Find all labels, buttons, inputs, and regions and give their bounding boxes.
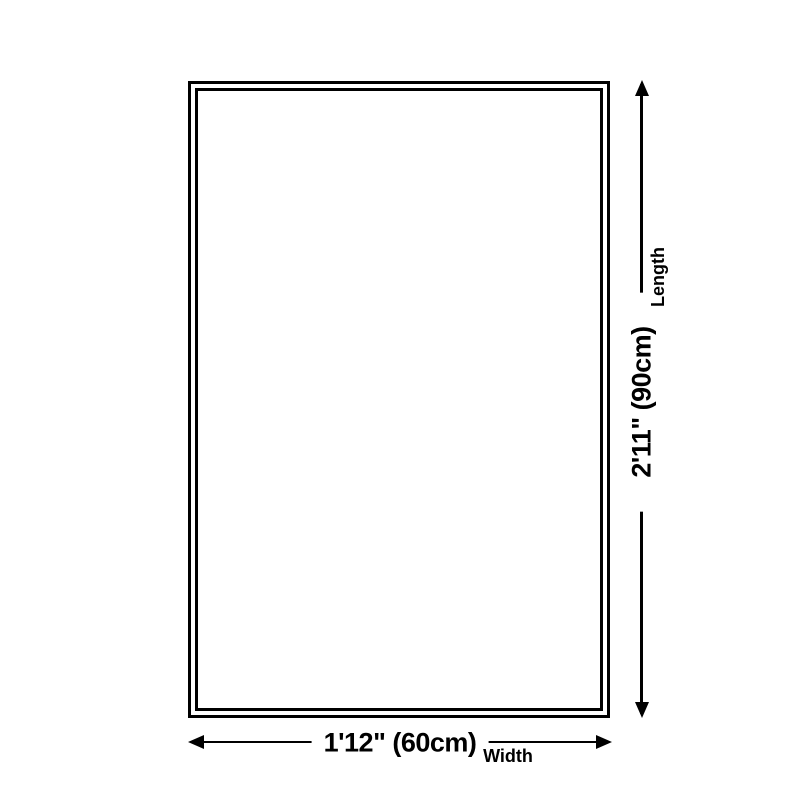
dimension-diagram: 2'11" (90cm) Length 1'12" (60cm) Width [0, 0, 800, 800]
product-outline-inner [195, 88, 603, 711]
length-axis-label: Length [649, 247, 669, 307]
arrow-right-icon [596, 735, 612, 749]
product-outline-outer [188, 81, 610, 718]
arrow-up-icon [635, 80, 649, 96]
arrow-down-icon [635, 702, 649, 718]
length-value-label: 2'11" (90cm) [626, 292, 657, 511]
arrow-left-icon [188, 735, 204, 749]
width-axis-label: Width [483, 747, 533, 767]
width-value-label: 1'12" (60cm) [312, 727, 489, 758]
